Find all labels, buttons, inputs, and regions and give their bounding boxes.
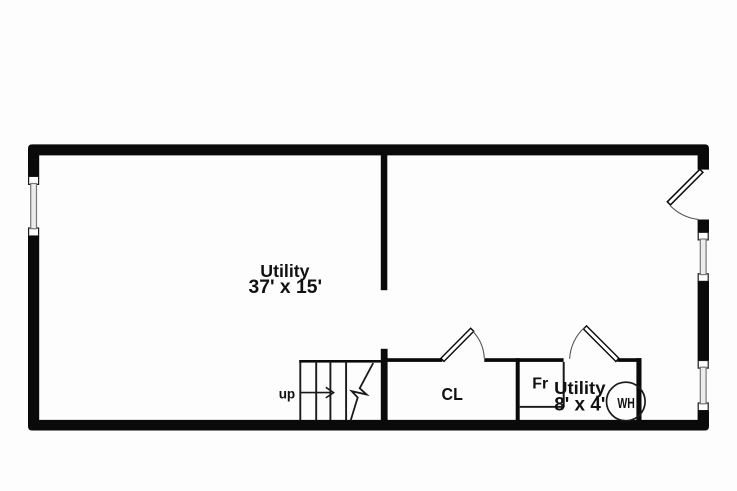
- svg-text:37' x 15': 37' x 15': [249, 276, 323, 298]
- svg-text:up: up: [279, 386, 296, 402]
- svg-text:CL: CL: [442, 384, 464, 404]
- svg-text:8' x 4': 8' x 4': [554, 395, 605, 416]
- svg-text:WH: WH: [617, 395, 635, 412]
- svg-text:Fr: Fr: [532, 376, 548, 393]
